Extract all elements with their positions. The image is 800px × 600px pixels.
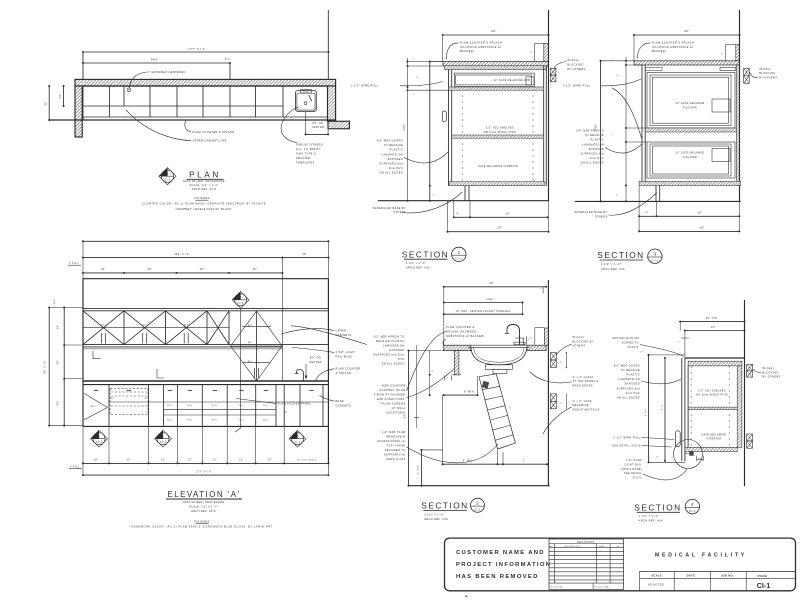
svg-text:PVC: PVC <box>398 357 404 361</box>
svg-text:MEDICAL FACILITY: MEDICAL FACILITY <box>655 553 747 559</box>
svg-text:18": 18" <box>698 211 703 214</box>
svg-text:Project Mgr:: Project Mgr: <box>595 586 611 589</box>
svg-text:34": 34" <box>56 401 60 406</box>
svg-text:BY: BY <box>616 546 620 548</box>
svg-text:24⅛": 24⅛" <box>486 297 494 301</box>
svg-text:15" TYP.: 15" TYP. <box>706 317 719 320</box>
svg-text:BACKER): BACKER) <box>460 49 474 53</box>
svg-text:15": 15" <box>188 460 193 462</box>
svg-text:UPPER: UPPER <box>336 329 347 333</box>
svg-text:4": 4" <box>561 360 563 363</box>
svg-text:RECEIVE PLASTIC: RECEIVE PLASTIC <box>376 339 405 343</box>
svg-text:HAS BEEN REMOVED: HAS BEEN REMOVED <box>456 574 539 580</box>
svg-text:SINK TYPE &: SINK TYPE & <box>296 151 316 155</box>
svg-text:COUNTER COLOR: (PL-1) PLAM #4: COUNTER COLOR: (PL-1) PLAM #4663 'GRAPHI… <box>142 202 266 206</box>
svg-text:R1: R1 <box>284 412 288 414</box>
svg-text:TO RECEIVE: TO RECEIVE <box>585 133 604 137</box>
svg-text:MATCHING PLAM: MATCHING PLAM <box>613 336 639 340</box>
svg-text:SURFACES and: SURFACES and <box>379 161 403 165</box>
svg-text:GATE MELAMINE: GATE MELAMINE <box>701 433 726 436</box>
svg-text:⅜": ⅜" <box>431 371 434 373</box>
svg-text:LIGHT RAIL: LIGHT RAIL <box>625 463 643 466</box>
svg-text:4": 4" <box>531 50 533 53</box>
svg-text:GROMMET: HAFELE #429.99 'BLACK: GROMMET: HAFELE #429.99 'BLACK' <box>176 207 233 211</box>
svg-text:20" (22" MIN.): 20" (22" MIN.) <box>297 460 316 462</box>
svg-text:ADJ: ADJ <box>248 360 253 363</box>
svg-text:PLAM ACCESS PANEL: PLAM ACCESS PANEL <box>278 402 312 406</box>
svg-text:LAMINATE ON: LAMINATE ON <box>381 152 403 156</box>
svg-text:TYP. FINISH: TYP. FINISH <box>387 443 406 447</box>
svg-text:1/2" ADJ SHELVES: 1/2" ADJ SHELVES <box>486 126 514 130</box>
svg-text:BY OTHERS: BY OTHERS <box>567 67 585 71</box>
svg-text:SCRIBE TO: SCRIBE TO <box>622 341 639 345</box>
svg-text:SCHEDULED BASE BY: SCHEDULED BASE BY <box>574 211 607 214</box>
svg-text:SECTION: SECTION <box>634 502 681 512</box>
svg-text:AT TOP FRONT &: AT TOP FRONT & <box>573 379 599 383</box>
svg-text:OTHERS: OTHERS <box>595 216 608 219</box>
svg-text:10" MAX, CENTER FAUCET HANDLES: 10" MAX, CENTER FAUCET HANDLES <box>456 310 511 313</box>
svg-text:8" MIN.: 8" MIN. <box>464 389 475 393</box>
svg-text:20": 20" <box>44 101 48 106</box>
svg-text:ARCH REF: A2.8: ARCH REF: A2.8 <box>192 188 217 191</box>
svg-text:CI-1: CI-1 <box>757 581 771 590</box>
svg-text:SUBSTRATE w/ BACKER): SUBSTRATE w/ BACKER) <box>446 334 485 338</box>
svg-text:W-GALL: W-GALL <box>763 366 775 370</box>
svg-text:ARCH REF: N/A: ARCH REF: N/A <box>424 517 448 521</box>
svg-text:FINISHES: FINISHES <box>194 520 209 524</box>
svg-text:Drawn By:: Drawn By: <box>551 586 564 589</box>
svg-text:15": 15" <box>239 460 244 462</box>
svg-text:ARCH REF: N/A: ARCH REF: N/A <box>601 267 625 271</box>
svg-text:3/4" MDF FRONTS: 3/4" MDF FRONTS <box>576 129 604 133</box>
svg-text:4": 4" <box>721 52 723 55</box>
svg-text:ON 5mm SHELF PINS: ON 5mm SHELF PINS <box>696 394 728 397</box>
svg-text:W-GALL: W-GALL <box>567 58 579 62</box>
svg-text:3mm PVC: 3mm PVC <box>389 166 403 170</box>
svg-text:2'-6": 2'-6" <box>661 404 663 410</box>
svg-text:96½": 96½" <box>151 58 159 62</box>
svg-text:2-3/8" LIGHT: 2-3/8" LIGHT <box>336 350 356 354</box>
svg-text:20" GATE MELAMINE: 20" GATE MELAMINE <box>675 152 704 155</box>
svg-text:DATE: DATE <box>599 545 605 548</box>
svg-text:CENTER: CENTER <box>312 126 324 129</box>
svg-text:PULL: PULL <box>212 420 218 422</box>
svg-text:PULL: PULL <box>263 420 269 422</box>
svg-text:CI-1: CI-1 <box>689 509 696 513</box>
svg-text:PULL: PULL <box>187 405 193 407</box>
svg-text:2: 2 <box>98 435 100 439</box>
svg-text:(SHIP LOOSE): (SHIP LOOSE) <box>621 468 642 471</box>
svg-text:7 FILL: 7 FILL <box>69 261 79 265</box>
svg-text:24": 24" <box>700 225 705 229</box>
svg-text:ADJ: ADJ <box>91 405 96 408</box>
svg-text:PROVIDE: PROVIDE <box>296 156 310 160</box>
svg-text:PULL: PULL <box>167 420 173 422</box>
svg-text:30": 30" <box>302 252 307 256</box>
svg-text:JOB NO.: JOB NO. <box>721 574 734 578</box>
svg-text:& SPLASH: & SPLASH <box>336 371 352 375</box>
svg-text:CI-1: CI-1 <box>237 301 244 305</box>
svg-text:SCALE: SCALE <box>651 574 662 578</box>
svg-text:1 1/2" = 1'-0": 1 1/2" = 1'-0" <box>424 512 444 516</box>
svg-text:R1: R1 <box>110 398 114 400</box>
svg-text:ON ALL EDGES: ON ALL EDGES <box>380 170 403 174</box>
svg-text:ADJ: ADJ <box>248 324 253 327</box>
svg-text:ON ALL EDGES: ON ALL EDGES <box>581 160 604 164</box>
svg-text:SURFACES and: SURFACES and <box>616 386 640 390</box>
svg-text:⅜: ⅜ <box>528 339 530 341</box>
svg-text:1 1/2" = 1'-0": 1 1/2" = 1'-0" <box>639 514 659 518</box>
svg-text:PLAM COUNTER: PLAM COUNTER <box>336 367 361 371</box>
svg-text:RAIL MLDG: RAIL MLDG <box>336 355 353 359</box>
svg-text:BLOCKING BY: BLOCKING BY <box>573 339 594 343</box>
svg-text:344" V.I.F.: 344" V.I.F. <box>174 252 190 256</box>
svg-text:1": 1" <box>523 459 526 462</box>
svg-text:2" FILL: 2" FILL <box>54 298 56 308</box>
svg-text:FILE DWR: FILE DWR <box>683 157 697 159</box>
svg-text:1" x 4" GATE: 1" x 4" GATE <box>573 399 592 403</box>
svg-text:1/2" ADJ SHELVES: 1/2" ADJ SHELVES <box>698 389 726 392</box>
svg-text:4": 4" <box>646 211 649 214</box>
svg-text:PLAM COUNTER & SPLASH: PLAM COUNTER & SPLASH <box>652 40 694 44</box>
svg-text:BLOCKING: BLOCKING <box>763 370 779 374</box>
svg-text:1⅛: 1⅛ <box>698 457 701 459</box>
svg-text:3mm PVC: 3mm PVC <box>590 156 604 160</box>
svg-text:BY OTHERS: BY OTHERS <box>763 375 781 379</box>
svg-text:CI-1: CI-1 <box>651 258 658 262</box>
svg-text:2: 2 <box>296 435 298 439</box>
svg-text:ADJ: ADJ <box>184 323 189 326</box>
svg-text:SPLASH (PLYWOOD: SPLASH (PLYWOOD <box>446 330 477 334</box>
svg-text:PLASTIC: PLASTIC <box>591 138 604 142</box>
svg-text:SCALE: 1/2" = 1'-0": SCALE: 1/2" = 1'-0" <box>189 506 218 509</box>
svg-text:36": 36" <box>253 268 258 271</box>
svg-text:W-GALL: W-GALL <box>573 335 585 339</box>
svg-text:SCHEDULED BASE BY: SCHEDULED BASE BY <box>373 207 406 210</box>
svg-text:R1: R1 <box>144 398 148 400</box>
svg-text:CABINETS: CABINETS <box>336 333 352 337</box>
svg-text:OTHERS: OTHERS <box>573 344 586 348</box>
svg-text:ADJ: ADJ <box>101 323 106 326</box>
svg-text:W-GALL: W-GALL <box>759 67 771 71</box>
svg-text:⅝": ⅝" <box>656 455 659 458</box>
svg-text:15": 15" <box>268 460 273 462</box>
svg-text:LAMINATE ON: LAMINATE ON <box>383 344 405 348</box>
svg-text:F.L.: F.L. <box>225 57 231 61</box>
svg-text:7 PLAM SCREWS: 7 PLAM SCREWS <box>379 402 405 406</box>
svg-text:ON ALL EDGES: ON ALL EDGES <box>617 395 640 399</box>
svg-text:PAGE: PAGE <box>758 574 768 578</box>
svg-text:9" MIN.: 9" MIN. <box>418 464 420 474</box>
svg-text:PULL: PULL <box>167 405 173 407</box>
svg-text:G.C. TO VERIFY: G.C. TO VERIFY <box>296 147 321 151</box>
svg-text:UPPER CABINET LINE: UPPER CABINET LINE <box>193 139 227 143</box>
svg-text:SECURED TO: SECURED TO <box>385 448 406 452</box>
svg-text:3/CI-3: 3/CI-3 <box>633 477 642 480</box>
svg-text:KERG CLIPS: KERG CLIPS <box>386 457 405 461</box>
svg-text:36": 36" <box>200 268 205 271</box>
svg-text:BACK EDGES: BACK EDGES <box>573 383 593 387</box>
svg-text:(PLYWOOD SUBSTRATE w/: (PLYWOOD SUBSTRATE w/ <box>652 45 693 49</box>
svg-text:2" x 2" CLEAT: 2" x 2" CLEAT <box>573 375 594 379</box>
svg-text:LAMINATE ON: LAMINATE ON <box>582 142 604 146</box>
svg-text:SECTION: SECTION <box>402 249 449 259</box>
svg-text:26": 26" <box>56 360 60 365</box>
svg-text:26": 26" <box>684 29 690 33</box>
svg-text:4": 4" <box>457 212 460 215</box>
svg-text:MOUNTING RAILS: MOUNTING RAILS <box>573 407 600 411</box>
svg-text:1/2" MDF PLAM: 1/2" MDF PLAM <box>382 430 406 434</box>
svg-text:FINISH AT FINISHED: FINISH AT FINISHED <box>374 393 406 397</box>
svg-text:7 FILL: 7 FILL <box>70 465 80 469</box>
svg-text:2: 2 <box>240 296 242 300</box>
svg-text:34½": 34½" <box>402 123 406 130</box>
svg-text:CI-1: CI-1 <box>160 440 167 444</box>
svg-text:8½" OD: 8½" OD <box>310 355 321 359</box>
svg-text:15": 15" <box>213 460 218 462</box>
svg-text:FILE DWR: FILE DWR <box>683 108 697 110</box>
svg-text:¾": ¾" <box>611 134 614 137</box>
svg-text:PULL: PULL <box>263 405 269 407</box>
svg-text:4": 4" <box>616 195 619 197</box>
svg-text:8½" OD: 8½" OD <box>313 121 324 125</box>
svg-text:ARCH REF: N/A: ARCH REF: N/A <box>406 266 430 270</box>
svg-text:¾": ¾" <box>412 93 415 96</box>
svg-text:SOFFIT: SOFFIT <box>627 345 639 349</box>
svg-text:22" GATE MELAMINE DRW: 22" GATE MELAMINE DRW <box>494 79 531 82</box>
svg-text:BASE: BASE <box>336 399 344 403</box>
svg-text:PULL: PULL <box>239 405 245 407</box>
svg-text:ADJ: ADJ <box>142 323 147 326</box>
svg-text:26": 26" <box>491 29 497 33</box>
svg-text:177" V.I.F.: 177" V.I.F. <box>188 47 206 51</box>
svg-text:3 ⅛" PLAM: 3 ⅛" PLAM <box>626 459 642 462</box>
svg-text:2 1/2" WIRE PULL: 2 1/2" WIRE PULL <box>563 84 591 88</box>
svg-text:REMOVABLE: REMOVABLE <box>386 434 405 438</box>
svg-text:DATE: DATE <box>687 574 695 578</box>
svg-text:TO RECEIVE: TO RECEIVE <box>621 368 640 372</box>
svg-text:3/4" MDF DOORS: 3/4" MDF DOORS <box>614 364 640 368</box>
svg-text:EXPOSED: EXPOSED <box>625 382 640 386</box>
svg-text:CUSTOMER NAME AND: CUSTOMER NAME AND <box>456 550 545 556</box>
svg-text:PLASTIC: PLASTIC <box>627 373 640 377</box>
svg-text:NO.: NO. <box>550 546 554 548</box>
svg-text:ON 5mm SHELF PINS: ON 5mm SHELF PINS <box>484 130 516 134</box>
svg-text:3/4" MDF DOORS: 3/4" MDF DOORS <box>377 139 403 143</box>
svg-text:24": 24" <box>101 268 106 271</box>
svg-text:2" GROMMET CENTERED: 2" GROMMET CENTERED <box>147 70 186 74</box>
svg-text:¾": ¾" <box>611 58 614 61</box>
svg-text:MELAMINE: MELAMINE <box>573 403 589 407</box>
svg-text:EXPOSED: EXPOSED <box>388 157 403 161</box>
svg-text:1/2" MDF APRON TO: 1/2" MDF APRON TO <box>373 334 404 338</box>
svg-text:2": 2" <box>446 378 449 380</box>
svg-text:NFPA 99 MED. PROCEDURE: NFPA 99 MED. PROCEDURE <box>183 501 225 504</box>
svg-text:CABINETS: CABINETS <box>336 404 352 408</box>
svg-text:PLAM COUNTER & SPLASH: PLAM COUNTER & SPLASH <box>460 40 502 44</box>
svg-text:36": 36" <box>148 268 153 271</box>
svg-text:CI-1: CI-1 <box>455 257 462 261</box>
svg-text:15": 15" <box>161 460 166 462</box>
svg-text:SEE DETAIL 3/CI-3: SEE DETAIL 3/CI-3 <box>612 443 641 447</box>
svg-text:SURFACES and 3mm: SURFACES and 3mm <box>373 353 405 357</box>
svg-text:SEE DETAIL: SEE DETAIL <box>624 472 642 475</box>
svg-text:9" MIN.: 9" MIN. <box>463 459 474 462</box>
svg-text:(PLYWOOD SUBSTRATE w/: (PLYWOOD SUBSTRATE w/ <box>460 45 501 49</box>
svg-text:PULL: PULL <box>212 405 218 407</box>
svg-text:3mm PVC: 3mm PVC <box>626 391 640 395</box>
svg-text:INTERIOR: INTERIOR <box>707 438 722 441</box>
svg-text:BY OTHERS: BY OTHERS <box>759 76 777 80</box>
svg-text:4": 4" <box>531 336 533 339</box>
svg-text:END CONDITIONS,: END CONDITIONS, <box>377 397 406 401</box>
svg-text:2 1/2" WIRE PULL: 2 1/2" WIRE PULL <box>614 435 641 439</box>
svg-text:EXPOSED: EXPOSED <box>389 348 404 352</box>
svg-text:4": 4" <box>561 401 563 404</box>
svg-text:20" GATE MELAMINE: 20" GATE MELAMINE <box>675 102 704 105</box>
svg-text:¾": ¾" <box>412 58 415 61</box>
svg-text:14": 14" <box>711 326 716 329</box>
svg-text:MDF COUNTER: MDF COUNTER <box>382 383 405 387</box>
svg-text:ARCH REF: A5-8: ARCH REF: A5-8 <box>191 510 216 513</box>
svg-text:BLOCKING: BLOCKING <box>567 62 583 66</box>
svg-text:⅛": ⅛" <box>616 75 619 77</box>
svg-text:ON ALL EDGES: ON ALL EDGES <box>381 362 404 366</box>
svg-text:TEMPLATES: TEMPLATES <box>296 160 315 164</box>
svg-text:FINISHES: FINISHES <box>194 196 209 200</box>
svg-text:CI-1: CI-1 <box>96 440 103 444</box>
svg-text:CI-1: CI-1 <box>474 508 481 512</box>
svg-text:18": 18" <box>506 212 511 215</box>
svg-text:SCALE: 1/2" = 1'-0": SCALE: 1/2" = 1'-0" <box>190 184 219 187</box>
svg-text:PULL: PULL <box>187 420 193 422</box>
svg-text:177" V.I.F.: 177" V.I.F. <box>196 469 212 473</box>
svg-text:AT WALL: AT WALL <box>392 406 406 410</box>
svg-text:BLOCKING: BLOCKING <box>759 71 775 75</box>
svg-text:1 1/2" = 1'-0": 1 1/2" = 1'-0" <box>406 261 426 265</box>
svg-text:SURFACES and: SURFACES and <box>580 151 604 155</box>
svg-text:ADJ: ADJ <box>248 341 253 344</box>
svg-text:SECTION: SECTION <box>597 250 644 260</box>
svg-text:ELEVATION 'A': ELEVATION 'A' <box>167 490 240 499</box>
svg-text:4": 4" <box>433 194 436 196</box>
svg-text:PULL: PULL <box>239 420 245 422</box>
svg-text:CENTER: CENTER <box>309 360 322 364</box>
svg-text:PLAN: PLAN <box>189 171 221 180</box>
svg-text:ARCH REF: N/A: ARCH REF: N/A <box>639 519 663 523</box>
svg-text:LAMINATE ON: LAMINATE ON <box>618 377 640 381</box>
svg-text:14": 14" <box>58 94 62 99</box>
svg-text:2: 2 <box>166 172 168 176</box>
svg-text:DESCRIPTION: DESCRIPTION <box>564 546 580 548</box>
svg-text:PLASTIC: PLASTIC <box>390 148 403 152</box>
svg-text:GATE MELAMINE INTERIOR: GATE MELAMINE INTERIOR <box>478 165 518 168</box>
svg-text:ACCESS PANEL w/: ACCESS PANEL w/ <box>377 439 406 443</box>
svg-text:SINK: SINK <box>303 92 309 94</box>
svg-text:EXPOSED: EXPOSED <box>589 147 604 151</box>
svg-text:NFPA 99 MED. PROCEDURE: NFPA 99 MED. PROCEDURE <box>183 180 225 183</box>
svg-text:⅝": ⅝" <box>677 341 680 344</box>
svg-text:2: 2 <box>162 435 164 439</box>
svg-text:CI-1: CI-1 <box>294 440 301 444</box>
svg-text:BACKER): BACKER) <box>652 49 666 53</box>
svg-text:PROJECT INFORMATION: PROJECT INFORMATION <box>456 562 551 568</box>
svg-text:CI-1: CI-1 <box>164 178 171 182</box>
svg-text:REVISIONS: REVISIONS <box>577 540 595 544</box>
svg-text:34": 34" <box>403 414 407 419</box>
svg-text:CASEWORK COLOR: (PL-2) PLAM 5: CASEWORK COLOR: (PL-2) PLAM 5494-S 'CORO… <box>131 524 272 528</box>
svg-text:18": 18" <box>94 460 99 462</box>
svg-text:¾": ¾" <box>539 287 542 290</box>
svg-text:SUPPORTS w/: SUPPORTS w/ <box>384 453 406 457</box>
svg-text:SINK BY OTHERS,: SINK BY OTHERS, <box>296 143 324 147</box>
svg-text:PLAM COUNTER & SPLASH: PLAM COUNTER & SPLASH <box>193 130 235 134</box>
svg-text:2 1/2" WIRE PULL: 2 1/2" WIRE PULL <box>351 84 379 88</box>
svg-text:SUPPORT (PLAM: SUPPORT (PLAM <box>380 388 406 392</box>
svg-text:26": 26" <box>489 281 494 285</box>
svg-text:LOCATIONS): LOCATIONS) <box>386 411 405 415</box>
svg-text:TO RECEIVE: TO RECEIVE <box>384 143 403 147</box>
svg-text:14": 14" <box>56 325 60 330</box>
svg-text:1 1/2" = 1'-0": 1 1/2" = 1'-0" <box>601 262 621 266</box>
svg-text:36": 36" <box>127 460 132 462</box>
svg-text:SECTION: SECTION <box>421 501 468 511</box>
svg-text:PLAM COUNTER &: PLAM COUNTER & <box>446 325 474 329</box>
svg-text:AS NOTED: AS NOTED <box>648 582 664 586</box>
svg-text:24": 24" <box>498 226 503 230</box>
svg-text:66" V.I.F.: 66" V.I.F. <box>42 360 46 374</box>
